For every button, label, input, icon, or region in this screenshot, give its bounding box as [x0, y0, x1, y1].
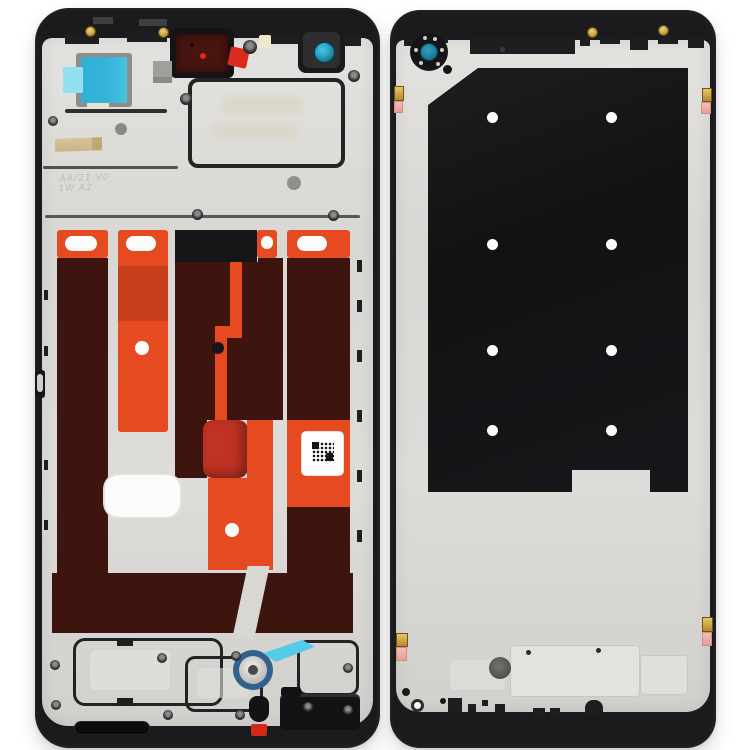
screw-hole-dot: [606, 112, 617, 123]
adhesive-trace: [215, 326, 227, 420]
adhesive-oval-hole: [261, 236, 273, 249]
screw-hole-dot: [487, 345, 498, 356]
screw: [343, 705, 353, 715]
loudspeaker-grille: [75, 722, 149, 734]
antenna-contact-pink: [396, 647, 407, 661]
plate-window-hole: [105, 475, 180, 517]
adhesive-dot-hole: [225, 523, 239, 537]
top-band-notch: [658, 38, 678, 44]
screw: [50, 660, 60, 670]
camera-ring-clip: [436, 62, 440, 66]
screw: [180, 93, 192, 105]
front-housing-frame: AA/21 V0 1W A2: [35, 8, 380, 748]
bottom-band-notch: [495, 704, 505, 712]
bottom-band-notch: [482, 700, 488, 706]
screw: [235, 710, 245, 720]
screw-hole-dot: [487, 239, 498, 250]
adhesive-strip: [287, 258, 350, 420]
screw-hole-dot: [606, 239, 617, 250]
screw: [157, 653, 167, 663]
screw-hole-white: [411, 699, 424, 712]
edge-notch: [357, 260, 362, 272]
top-band-notch: [600, 38, 620, 44]
gold-screw: [85, 26, 96, 37]
screw: [243, 40, 257, 54]
screw-hole-dot: [606, 425, 617, 436]
screw: [192, 209, 203, 220]
top-band-notch: [271, 34, 301, 44]
adhesive-zone: [247, 420, 273, 480]
top-band-slot: [93, 17, 113, 24]
red-tab: [251, 724, 267, 736]
edge-notch: [357, 350, 362, 362]
side-button: [37, 374, 43, 392]
back-housing-frame: [390, 10, 716, 748]
screw-hole-dot: [487, 425, 498, 436]
mini-screw: [596, 648, 601, 653]
screw: [328, 210, 339, 221]
edge-notch: [44, 460, 48, 470]
antenna-contact-gold: [394, 86, 404, 101]
bottom-band-notch: [468, 704, 476, 712]
gold-screw: [587, 27, 598, 38]
camera-ring-clip: [414, 48, 418, 52]
screw: [48, 116, 58, 126]
embossed-marking: [223, 96, 303, 114]
bottom-emboss: [640, 655, 688, 695]
back-panel: [428, 68, 688, 492]
antenna-contact-gold: [702, 88, 712, 102]
screw: [343, 663, 353, 673]
adhesive-crimson-tab: [203, 420, 248, 478]
qc-sticker-cyan: [81, 57, 127, 103]
top-band-notch: [470, 38, 575, 54]
top-band-notch: [630, 38, 648, 50]
screw-hole-dot: [606, 345, 617, 356]
adhesive-oval-hole: [126, 236, 156, 251]
edge-notch: [357, 410, 362, 422]
camera-ring-clip: [440, 48, 444, 52]
rubber-grommet: [249, 696, 269, 722]
screw: [303, 702, 313, 712]
edge-notch: [44, 520, 48, 530]
plate-dot-dark: [402, 688, 410, 696]
edge-notch: [44, 290, 48, 300]
qr-code: [312, 442, 334, 462]
screw-hole-dot: [487, 112, 498, 123]
adhesive-strip: [287, 507, 350, 573]
camera-ring-clip: [419, 61, 423, 65]
adhesive-band-bottom: [52, 573, 353, 633]
cream-pad: [259, 35, 271, 48]
earpiece-red-dot: [200, 53, 206, 59]
plate-dot: [287, 176, 301, 190]
bottom-band-notch: [448, 698, 462, 712]
adhesive-trace: [230, 262, 242, 332]
antenna-contact-pink: [702, 632, 712, 646]
connector-wing: [281, 687, 301, 697]
gasket-line: [65, 109, 167, 113]
antenna-contact-gold: [396, 633, 408, 647]
edge-notch: [357, 470, 362, 482]
adhesive-strip-cap-black: [175, 230, 257, 262]
antenna-contact-pink: [394, 101, 403, 113]
qc-sticker-tab: [63, 67, 83, 93]
bottom-band-notch: [585, 700, 603, 714]
vibration-motor-hole: [248, 665, 258, 675]
plate-dot-dark: [440, 698, 446, 704]
top-band-notch: [580, 38, 590, 46]
plate-dot: [115, 123, 127, 135]
gold-screw: [658, 25, 669, 36]
shield-gasket-outline: [188, 78, 345, 168]
camera-lens: [420, 43, 438, 61]
bottom-band-notch: [550, 708, 560, 718]
adhesive-zone: [208, 478, 273, 570]
screw: [348, 70, 360, 82]
edge-notch: [357, 300, 362, 312]
screw-hole-dark: [443, 65, 452, 74]
gasket-tab: [117, 638, 133, 646]
mini-screw: [526, 650, 531, 655]
product-photo: AA/21 V0 1W A2: [0, 0, 750, 750]
top-band-notch: [688, 38, 704, 48]
gasket-line: [43, 166, 178, 169]
adhesive-black-dot: [212, 342, 224, 354]
plate-pin-hole: [500, 47, 505, 52]
camera-ring-clip: [423, 36, 427, 40]
screw: [163, 710, 173, 720]
plate-hole-dark: [489, 657, 511, 679]
gold-screw: [158, 27, 169, 38]
adhesive-strip: [118, 230, 168, 432]
adhesive-oval-hole: [297, 236, 327, 251]
antenna-contact-pink: [701, 102, 711, 114]
bottom-band-notch: [533, 708, 545, 718]
adhesive-strip: [57, 258, 108, 610]
gray-chip: [153, 61, 172, 83]
camera-ring-clip: [433, 37, 437, 41]
antenna-contact-gold: [702, 617, 713, 632]
screw: [51, 700, 61, 710]
embossed-marking: [213, 124, 297, 140]
adhesive-shade: [118, 266, 168, 321]
earpiece-dark-dot: [190, 43, 194, 47]
adhesive-oval-hole: [65, 236, 97, 251]
top-band-slot: [139, 19, 167, 26]
screw: [231, 651, 241, 661]
gasket-tab: [117, 698, 133, 706]
edge-notch: [357, 530, 362, 542]
tan-strip: [55, 137, 102, 152]
front-camera-lens: [314, 42, 335, 63]
embossed-stamp: AA/21 V0 1W A2: [58, 172, 130, 194]
adhesive-strip: [258, 258, 283, 420]
edge-notch: [44, 346, 48, 356]
adhesive-dot-hole: [135, 341, 149, 355]
